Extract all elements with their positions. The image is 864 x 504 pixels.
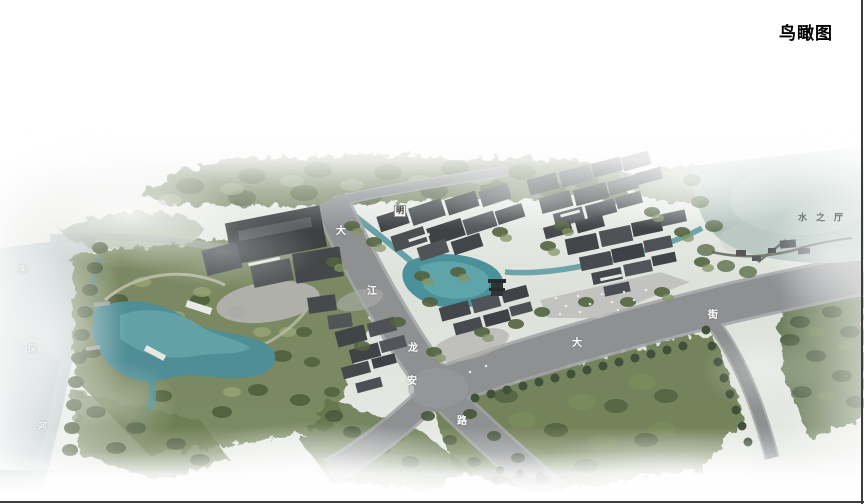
sheet-border-bottom (0, 501, 864, 503)
render-art (0, 0, 864, 504)
sheet-border-right (861, 0, 863, 504)
page-title: 鸟瞰图 (779, 19, 833, 44)
sheet: 大江龙安路大街朱保河水之厅明 鸟瞰图 (0, 0, 864, 504)
